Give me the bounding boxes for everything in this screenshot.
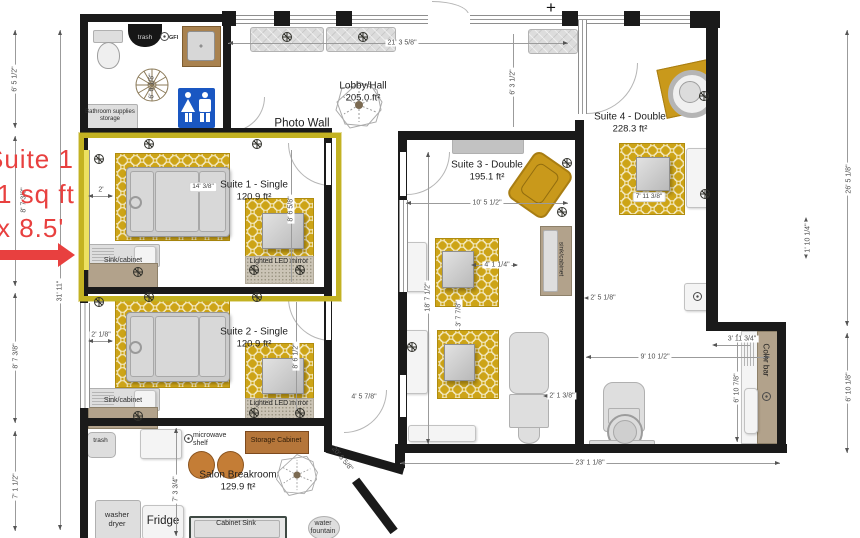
ceiling-light-icon — [295, 265, 305, 275]
dim-suite1-depth: 8' 6 5/8" — [288, 194, 295, 223]
floor-plan: 6' 5 1/2" 8' 7 3/8" 8' 7 3/8" 7' 1 1/2" … — [0, 0, 860, 538]
suite2-face-cradle — [129, 341, 142, 354]
bathroom-trash-label: trash — [131, 34, 159, 41]
wall-nook-top — [706, 322, 786, 331]
suite1-label: Suite 1 - Single120.9 ft² — [220, 178, 288, 203]
gfi-icon — [693, 292, 702, 301]
gfi-icon — [184, 434, 193, 443]
suite2-door-gap — [326, 298, 331, 340]
bathroom-sink[interactable] — [187, 31, 215, 61]
annotation-suite1-line3: x 8.5' — [0, 213, 64, 244]
dim-left-breakroom: 7' 1 1/2" — [13, 471, 20, 500]
dim-colorbar-width: 3' 11 3/4" — [726, 336, 759, 343]
microwave-shelf-label: microwave shelf — [193, 432, 235, 448]
dim-right-offset: 1' 10 1/4" — [805, 221, 812, 254]
suite2-label: Suite 2 - Single120.9 ft² — [220, 325, 288, 350]
dim-suite3-gap: 3' 7 7/8" — [456, 299, 463, 328]
dim-suite2-depth: 8' 6 1/2" — [293, 341, 300, 370]
breakroom-trash-bin[interactable] — [87, 432, 116, 458]
wall-post — [562, 11, 578, 26]
suite3-recliner-back[interactable] — [509, 332, 549, 394]
ceiling-light-icon — [282, 32, 292, 42]
suite3-bench[interactable] — [408, 425, 476, 442]
dim-suite4-gap: 2' 5 1/8" — [588, 295, 617, 302]
suite4-station[interactable] — [636, 157, 670, 191]
wall-nook-right — [777, 325, 786, 452]
chandelier-icon — [273, 452, 321, 498]
suite2-sink-label: Sink/cabinet — [92, 397, 154, 405]
suite3-left-window — [399, 200, 408, 292]
annotation-suite1-line2: 1 sq ft — [0, 179, 75, 210]
pedicure-bowl-inner — [679, 81, 701, 103]
ceiling-light-icon — [407, 342, 417, 352]
wall-bathroom-top — [80, 14, 232, 22]
ceiling-light-icon — [94, 297, 104, 307]
ceiling-light-icon — [358, 32, 368, 42]
ceiling-light-icon — [699, 91, 709, 101]
man-icon-head — [202, 92, 208, 98]
dim-suite3-depth: 18' 7 1/2" — [425, 280, 432, 313]
ceiling-light-icon — [249, 265, 259, 275]
colorbar-label: Color bar — [761, 344, 770, 377]
ceiling-light-icon — [94, 154, 104, 164]
dim-suite4-rug: 7' 11 3/8" — [633, 192, 666, 202]
suite3-station-upper[interactable] — [442, 251, 474, 288]
dim-suite3-width: 10' 5 1/2" — [470, 200, 503, 207]
dim-suite1-bed: 14' 3/8" — [189, 182, 217, 192]
plus-marker: + — [546, 0, 556, 18]
water-fountain-label: water fountain — [306, 520, 340, 536]
suite4-glass-wall — [578, 20, 587, 114]
ceiling-light-icon — [557, 207, 567, 217]
storage-cabinet-label: Storage Cabinet — [246, 437, 306, 445]
wall-post — [222, 11, 236, 26]
dim-breakroom-depth: 7' 3 3/4" — [173, 474, 180, 503]
wall-post — [336, 11, 352, 26]
suite3-station-lower[interactable] — [444, 344, 475, 381]
gfi-label: GFI — [169, 35, 178, 41]
red-arrow-head-icon — [58, 243, 75, 267]
wall-right — [706, 14, 718, 330]
woman-icon-head — [185, 92, 191, 98]
woman-icon-dress — [181, 99, 195, 112]
dim-suite3-bed: 2' 1 3/8" — [547, 393, 576, 400]
wall-suite3-suite4 — [575, 120, 584, 453]
dim-bathroom-ceiling: 6' 6 1/8" — [149, 71, 156, 100]
dim-lobby-depth: 6' 3 1/2" — [510, 67, 517, 96]
red-arrow-icon — [0, 250, 58, 260]
wall-post-corner — [690, 11, 720, 28]
dim-top-width: 21' 3 5/8" — [385, 40, 418, 47]
man-icon-body — [199, 99, 211, 112]
dim-suite3-door: 4' 5 7/8" — [349, 394, 378, 401]
suite3-sink-label: sink/cabinet — [557, 242, 564, 276]
dim-colorbar-depth: 6' 10 7/8" — [734, 371, 741, 404]
suite3-door-gap2 — [400, 375, 406, 417]
ceiling-light-icon — [133, 267, 143, 277]
dim-right-upper: 26' 5 1/8" — [846, 162, 853, 195]
washer-dryer-label: washer dryer — [97, 511, 137, 528]
ceiling-light-icon — [252, 292, 262, 302]
ceiling-light-icon — [144, 139, 154, 149]
lobby-bench[interactable] — [528, 29, 578, 54]
wall-bottom — [395, 444, 787, 453]
ceiling-light-icon — [144, 292, 154, 302]
ceiling-light-icon — [249, 408, 259, 418]
ceiling-light-icon — [700, 189, 710, 199]
ceiling-light-icon — [252, 139, 262, 149]
toilet-bowl[interactable] — [97, 42, 120, 69]
wall-post — [624, 11, 640, 26]
dim-suite4-width: 9' 10 1/2" — [638, 354, 671, 361]
photo-wall-label: Photo Wall — [274, 117, 329, 132]
cabinet-sink-label: Cabinet Sink — [216, 520, 256, 528]
dim-suite2-gap: 2' 1/8" — [89, 332, 112, 339]
dim-left-suite2: 8' 7 3/8" — [13, 341, 20, 370]
suite3-label: Suite 3 - Double195.1 ft² — [451, 158, 523, 183]
wall-angled-lower — [352, 478, 398, 535]
gfi-icon — [160, 32, 169, 41]
suite1-sink-label: Sink/cabinet — [92, 257, 154, 265]
suite4-label: Suite 4 - Double228.3 ft² — [594, 110, 666, 135]
wall-post — [274, 11, 290, 26]
ceiling-light-icon — [562, 158, 572, 168]
suite3-door-gap — [400, 152, 406, 196]
suite2-left-window — [80, 303, 90, 408]
shampoo-bowl-inner — [613, 420, 637, 444]
dim-bottom-width: 23' 1 1/8" — [573, 460, 606, 467]
suite2-mirror-label: Lighted LED mirror — [246, 400, 312, 408]
suite1-selection[interactable] — [79, 133, 341, 301]
breakroom-trash-label: trash — [88, 437, 113, 444]
suite3-recliner-seat[interactable] — [509, 394, 549, 428]
wall-suite2-bottom — [80, 418, 332, 426]
restroom-sign — [178, 88, 215, 128]
breakroom-label: Salon Breakroom129.9 ft² — [199, 468, 276, 493]
bathroom-storage-label: Bathroom supplies storage — [85, 109, 135, 123]
entry-door-gap — [428, 13, 470, 24]
wall-bathroom-right — [223, 14, 231, 132]
gfi-icon — [762, 392, 771, 401]
dim-right-lower: 6' 10 1/8" — [846, 370, 853, 403]
lobby-label: Lobby/Hall205.0 ft² — [339, 79, 386, 104]
dim-left-total: 31' 11" — [57, 279, 64, 304]
ceiling-light-icon — [133, 411, 143, 421]
dim-suite1-gap: 2' — [96, 187, 105, 194]
fridge-label: Fridge — [137, 515, 189, 528]
suite3-recliner-foot — [518, 427, 540, 444]
wall-suite3-top — [398, 131, 584, 140]
annotation-suite1-line1: Suite 1 — [0, 144, 74, 175]
dim-left-bathroom: 6' 5 1/2" — [12, 64, 19, 93]
dim-suite3-rug: 4' 1 1/4" — [482, 262, 511, 269]
